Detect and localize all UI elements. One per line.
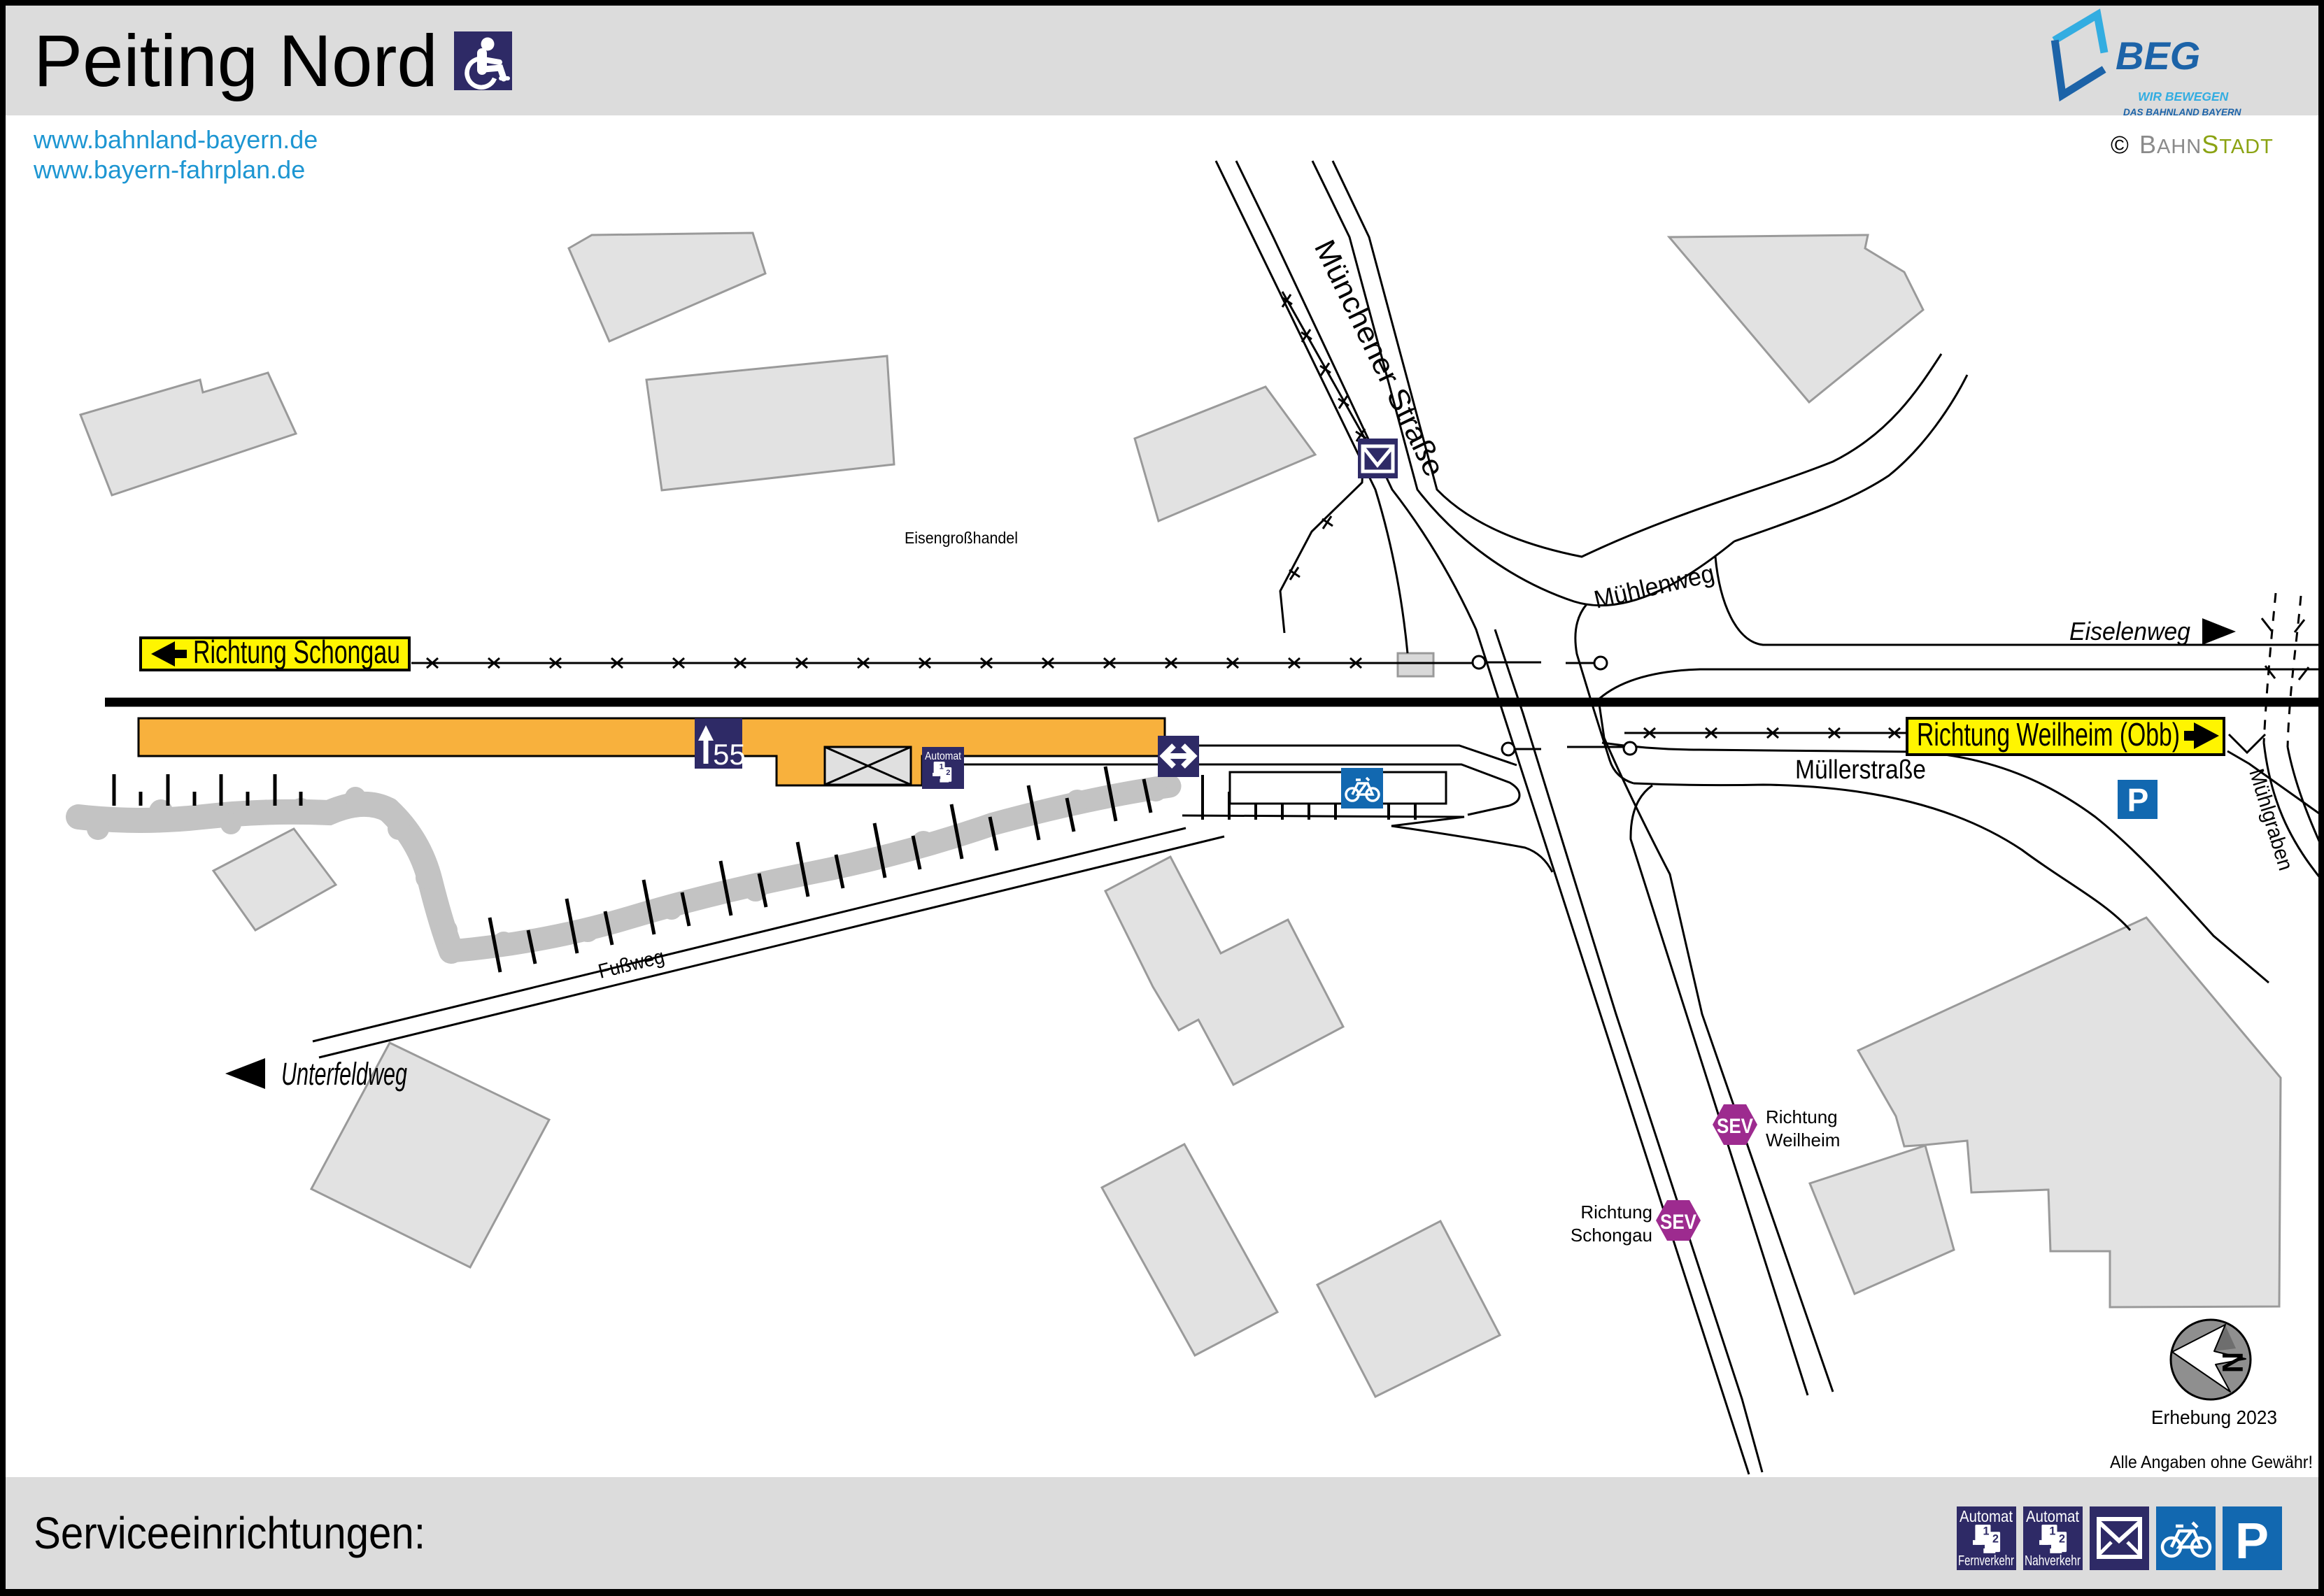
svg-text:Automat: Automat	[1960, 1507, 2013, 1525]
svg-text:SEV: SEV	[1660, 1211, 1696, 1234]
svg-text:BEG: BEG	[2116, 34, 2200, 78]
svg-text:Serviceeinrichtungen:: Serviceeinrichtungen:	[34, 1508, 425, 1558]
svg-text:Richtung: Richtung	[1766, 1106, 1838, 1127]
svg-text:DAS BAHNLAND BAYERN: DAS BAHNLAND BAYERN	[2123, 107, 2241, 117]
svg-text:Fernverkehr: Fernverkehr	[1958, 1553, 2014, 1569]
svg-text:Erhebung 2023: Erhebung 2023	[2151, 1406, 2277, 1428]
svg-text:WIR BEWEGEN: WIR BEWEGEN	[2138, 90, 2229, 104]
svg-text:Eisengroßhandel: Eisengroßhandel	[905, 529, 1018, 547]
svg-text:Automat: Automat	[925, 750, 961, 762]
svg-text:2: 2	[1992, 1533, 1999, 1546]
svg-text:©: ©	[2111, 131, 2129, 159]
svg-text:www.bayern-fahrplan.de: www.bayern-fahrplan.de	[33, 155, 305, 184]
svg-text:Richtung Schongau: Richtung Schongau	[193, 634, 400, 670]
svg-text:Peiting Nord: Peiting Nord	[34, 20, 438, 102]
svg-text:Unterfeldweg: Unterfeldweg	[281, 1056, 407, 1092]
svg-text:N: N	[2216, 1352, 2249, 1373]
svg-text:Schongau: Schongau	[1571, 1225, 1652, 1246]
svg-text:Richtung: Richtung	[1580, 1202, 1652, 1223]
svg-text:2: 2	[946, 769, 950, 777]
svg-text:1: 1	[1983, 1525, 1989, 1537]
svg-text:P: P	[2235, 1513, 2269, 1569]
svg-text:55: 55	[713, 738, 746, 771]
svg-text:Alle Angaben ohne Gewähr!: Alle Angaben ohne Gewähr!	[2110, 1453, 2313, 1472]
svg-text:www.bahnland-bayern.de: www.bahnland-bayern.de	[33, 125, 318, 154]
svg-text:Eiselenweg: Eiselenweg	[2069, 617, 2190, 646]
svg-text:2: 2	[2059, 1533, 2065, 1546]
svg-text:Automat: Automat	[2026, 1507, 2080, 1525]
svg-text:P: P	[2127, 782, 2149, 818]
svg-text:Richtung Weilheim (Obb): Richtung Weilheim (Obb)	[1917, 716, 2180, 753]
svg-text:1: 1	[940, 762, 944, 771]
svg-text:SEV: SEV	[1717, 1115, 1753, 1138]
svg-text:Nahverkehr: Nahverkehr	[2025, 1553, 2081, 1569]
svg-text:Weilheim: Weilheim	[1766, 1130, 1840, 1150]
svg-text:Müllerstraße: Müllerstraße	[1795, 755, 1926, 785]
svg-text:1: 1	[2049, 1525, 2055, 1537]
